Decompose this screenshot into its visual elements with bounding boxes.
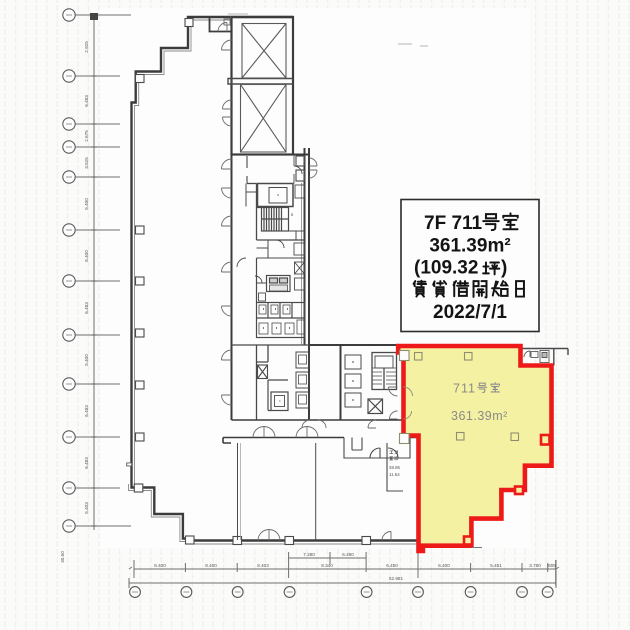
svg-text:8.400: 8.400 <box>154 563 166 568</box>
svg-text:52.981: 52.981 <box>389 576 403 581</box>
svg-text:6.400: 6.400 <box>84 250 89 262</box>
svg-text:6.483: 6.483 <box>84 95 89 107</box>
svg-text:8.403: 8.403 <box>257 563 269 568</box>
svg-text:361.39m²: 361.39m² <box>429 236 510 257</box>
svg-text:5.400: 5.400 <box>84 198 89 210</box>
svg-text:(109.32: (109.32 <box>414 258 478 279</box>
svg-text:6.483: 6.483 <box>84 405 89 417</box>
svg-text:6.483: 6.483 <box>84 457 89 469</box>
svg-text:): ) <box>501 258 507 279</box>
svg-text:11.54: 11.54 <box>389 472 400 477</box>
svg-text:2.925: 2.925 <box>84 41 89 53</box>
svg-text:2.675: 2.675 <box>84 130 89 142</box>
svg-text:805: 805 <box>548 563 556 568</box>
svg-text:5.403: 5.403 <box>84 502 89 514</box>
svg-text:5.451: 5.451 <box>490 563 502 568</box>
svg-text:2022/7/1: 2022/7/1 <box>433 302 507 323</box>
svg-text:5.400: 5.400 <box>84 354 89 366</box>
svg-text:38.86: 38.86 <box>389 465 401 470</box>
svg-text:7.280: 7.280 <box>303 552 315 557</box>
svg-text:8.400: 8.400 <box>205 563 217 568</box>
svg-text:6.483: 6.483 <box>84 302 89 314</box>
svg-text:40.50: 40.50 <box>60 551 65 563</box>
svg-text:7F 711: 7F 711 <box>424 213 483 234</box>
svg-text:8.340: 8.340 <box>321 563 333 568</box>
svg-text:361.39m²: 361.39m² <box>451 409 508 423</box>
svg-text:6.450: 6.450 <box>386 563 398 568</box>
svg-text:3.525: 3.525 <box>84 157 89 169</box>
svg-text:6.480: 6.480 <box>342 552 354 557</box>
svg-text:711: 711 <box>453 382 476 396</box>
svg-text:3.780: 3.780 <box>529 563 541 568</box>
svg-text:6.400: 6.400 <box>438 563 450 568</box>
